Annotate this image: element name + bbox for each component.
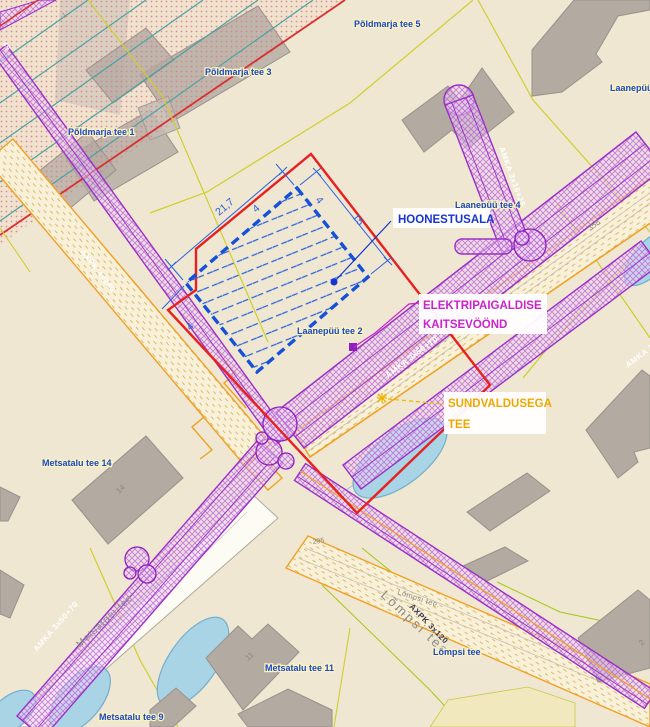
street-lompsi: Lõmpsi tee (433, 647, 481, 657)
street-metsatalu-9: Metsatalu tee 9 (99, 712, 164, 722)
kaitsevoond-marker (349, 343, 357, 351)
kaitsevoond-label-line1: ELEKTRIPAIGALDISE (423, 300, 542, 312)
street-laanepuu-6: Laanepüü tee 6 (610, 83, 650, 93)
street-metsatalu-14: Metsatalu tee 14 (42, 458, 112, 468)
corridor-stub (455, 239, 512, 254)
map-viewport[interactable]: 21,7 15 4 4 4 AXPK 4x240 AMKA 3x16+25 AM… (0, 0, 650, 727)
map-canvas: 21,7 15 4 4 4 AXPK 4x240 AMKA 3x16+25 AM… (0, 0, 650, 727)
kaitsevoond-label-line2: KAITSEVÖÖND (423, 318, 507, 331)
street-laanepuu-2: Laanepüü tee 2 (297, 326, 363, 336)
sundvaldus-label-line1: SUNDVALDUSEGA (448, 398, 552, 410)
street-poldmarja-1: Põldmarja tee 1 (68, 127, 135, 137)
hoonestusala-label: HOONESTUSALA (398, 214, 494, 226)
street-poldmarja-5: Põldmarja tee 5 (354, 19, 421, 29)
street-poldmarja-3: Põldmarja tee 3 (205, 67, 272, 77)
sundvaldus-marker (377, 393, 387, 403)
street-metsatalu-11: Metsatalu tee 11 (265, 663, 334, 673)
sundvaldus-label-line2: TEE (448, 419, 471, 431)
